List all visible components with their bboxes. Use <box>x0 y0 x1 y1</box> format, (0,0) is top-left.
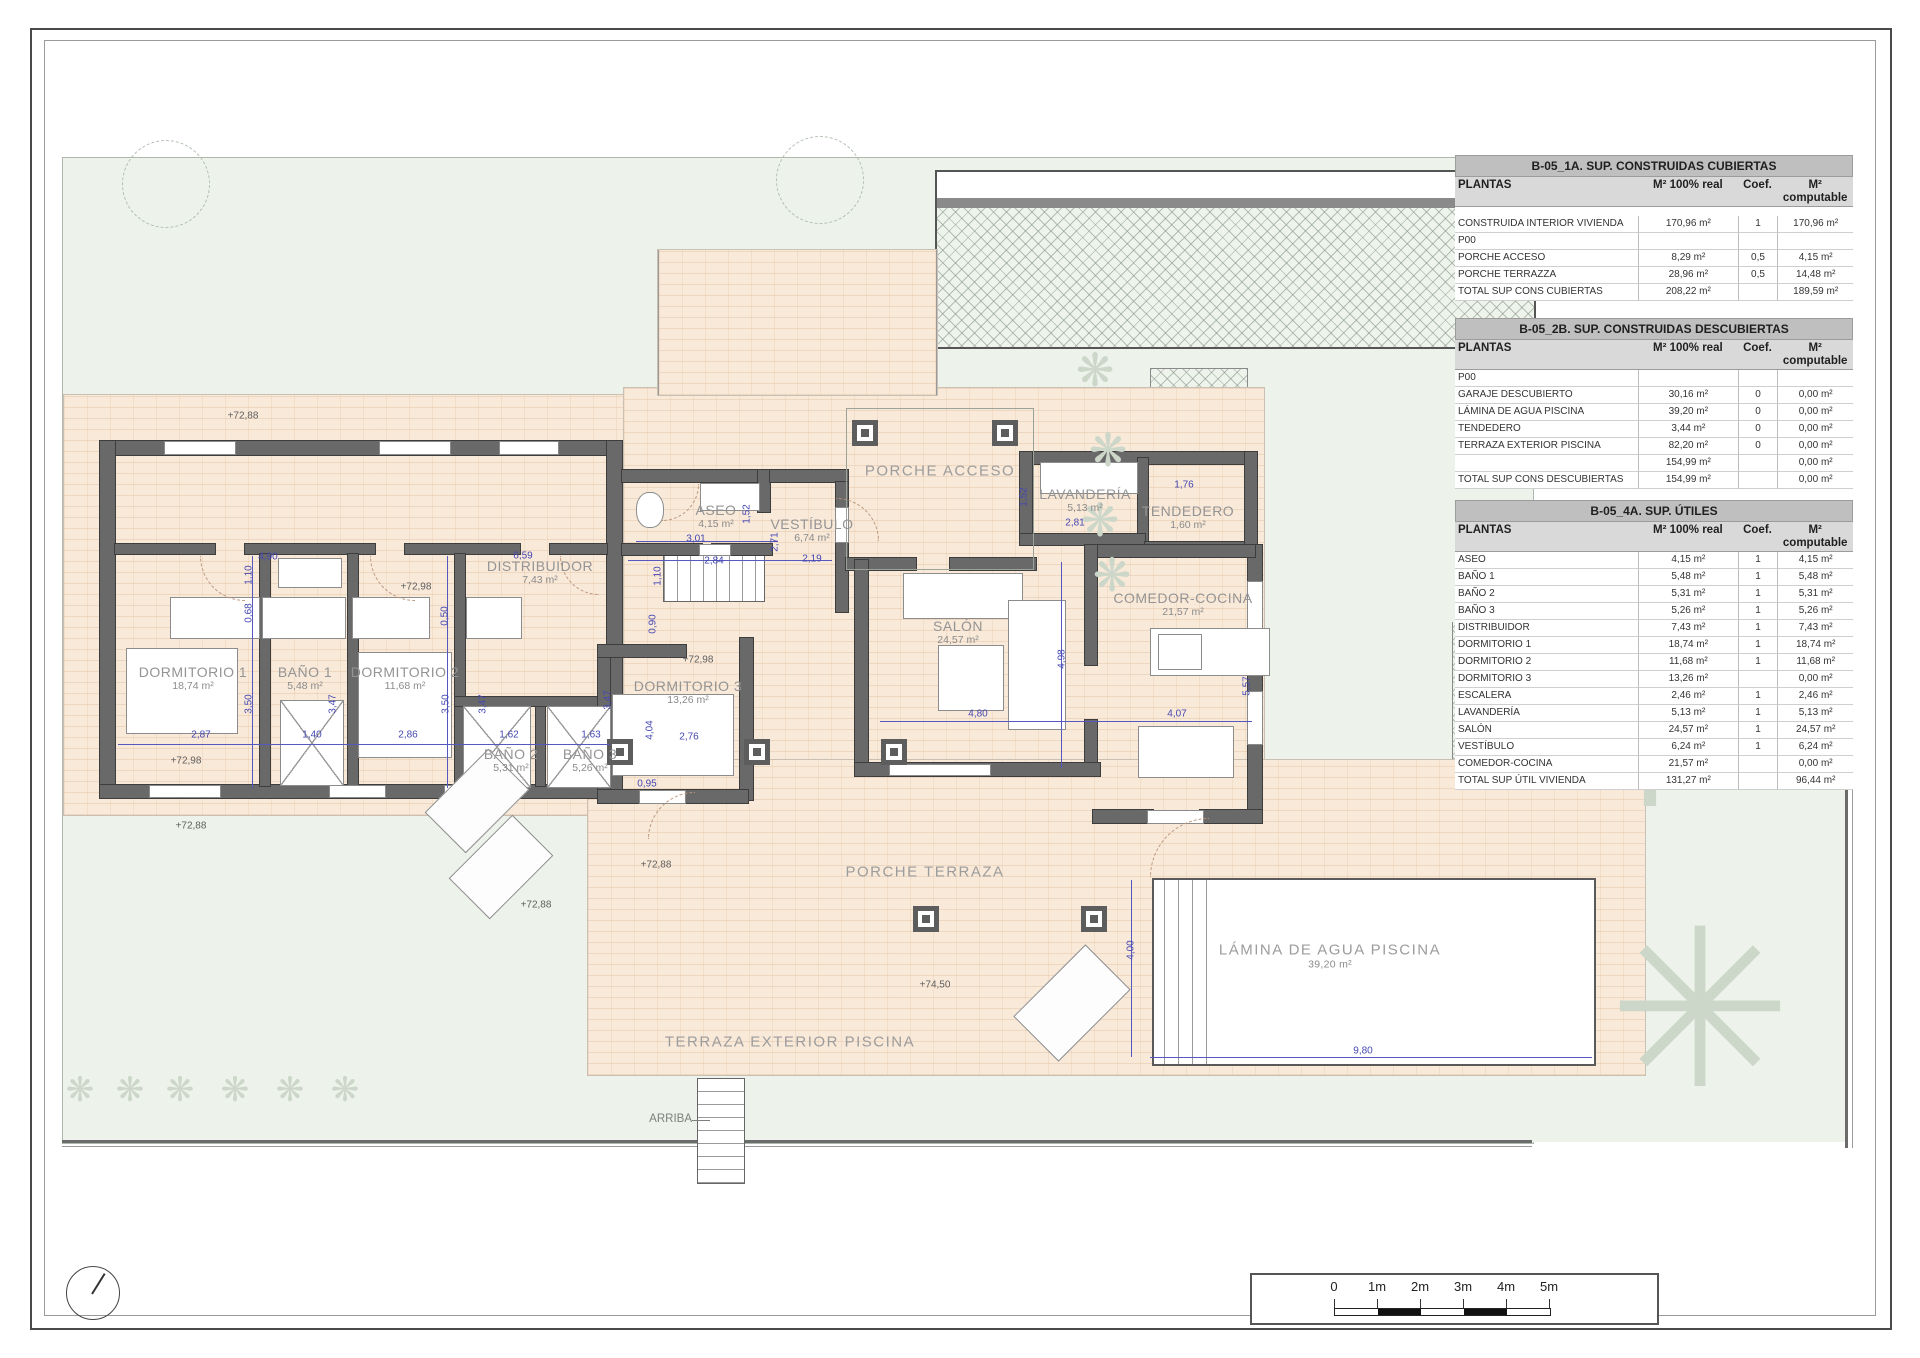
wall <box>622 470 772 482</box>
dimension-line <box>1131 880 1132 1057</box>
table-cell: DORMITORIO 2 <box>1455 654 1638 671</box>
dimension-text: 6,59 <box>513 551 532 562</box>
table-cell: PORCHE ACCESO <box>1455 250 1638 267</box>
scale-tick <box>1334 1299 1335 1308</box>
furniture <box>938 645 1004 711</box>
table-cell: 30,16 m² <box>1638 387 1738 404</box>
table-row: VESTÍBULO6,24 m²16,24 m² <box>1455 739 1853 756</box>
table-cell <box>1777 370 1853 387</box>
zone-label: LÁMINA DE AGUA PISCINA39,20 m² <box>1219 942 1441 971</box>
table-cell: 7,43 m² <box>1638 620 1738 637</box>
zone-area: 39,20 m² <box>1219 959 1441 971</box>
room-name: BAÑO 2 <box>484 746 538 762</box>
scale-segment <box>1378 1309 1421 1315</box>
furniture <box>903 573 1023 619</box>
table-body: P00GARAJE DESCUBIERTO30,16 m²00,00 m²LÁM… <box>1455 370 1853 489</box>
door-arc <box>370 556 415 601</box>
table-cell: 4,15 m² <box>1777 250 1853 267</box>
north-needle <box>91 1273 105 1294</box>
dimension-text: 1,62 <box>499 730 518 741</box>
table-header-cell: M² computable <box>1777 522 1853 551</box>
table-cell: 0,00 m² <box>1777 472 1853 489</box>
table-cell: 1 <box>1738 216 1778 233</box>
room-area: 11,68 m² <box>351 680 459 692</box>
table-title: B-05_2B. SUP. CONSTRUIDAS DESCUBIERTAS <box>1455 318 1853 340</box>
table-cell: 208,22 m² <box>1638 284 1738 301</box>
table-cell: TERRAZA EXTERIOR PISCINA <box>1455 438 1638 455</box>
garden-shrub: ❋ <box>66 1073 95 1107</box>
room-label: TENDEDERO1,60 m² <box>1142 503 1234 531</box>
table-cell: 1 <box>1738 739 1778 756</box>
dimension-line <box>636 541 778 542</box>
table-cell: 0,00 m² <box>1777 387 1853 404</box>
dimension-text: 4,98 <box>1057 649 1068 668</box>
table-cell: P00 <box>1455 233 1638 250</box>
zone-name: TERRAZA EXTERIOR PISCINA <box>665 1034 915 1051</box>
scale-segment <box>1421 1309 1464 1315</box>
tree-canopy-dashed <box>776 136 864 224</box>
level-marker: +72,88 <box>521 900 552 911</box>
dimension-text: 0,95 <box>637 779 656 790</box>
table-cell: 24,57 m² <box>1638 722 1738 739</box>
scale-tick <box>1463 1299 1464 1308</box>
room-label: DORMITORIO 313,26 m² <box>634 678 742 706</box>
table-cell: 154,99 m² <box>1638 455 1738 472</box>
table-cell: 1 <box>1738 705 1778 722</box>
table-cell: 11,68 m² <box>1638 654 1738 671</box>
garden-shrub: ❋ <box>331 1073 360 1107</box>
table-cell: 21,57 m² <box>1638 756 1738 773</box>
room-name: ASEO <box>696 502 737 518</box>
table-cell <box>1738 756 1778 773</box>
table-cell: 1 <box>1738 722 1778 739</box>
table-header-cell: Coef. <box>1738 522 1778 551</box>
window-gap <box>380 442 450 454</box>
table-cell: 0 <box>1738 404 1778 421</box>
room-label: BAÑO 25,31 m² <box>484 746 538 774</box>
table-cell: 189,59 m² <box>1777 284 1853 301</box>
table-cell: 3,44 m² <box>1638 421 1738 438</box>
table-cell <box>1738 671 1778 688</box>
zone-name: LÁMINA DE AGUA PISCINA <box>1219 942 1441 959</box>
table-cell: 0 <box>1738 438 1778 455</box>
table-cell: 1 <box>1738 569 1778 586</box>
scale-label: 3m <box>1454 1279 1472 1294</box>
table-cell: BAÑO 1 <box>1455 569 1638 586</box>
table-cell: 0,00 m² <box>1777 438 1853 455</box>
room-area: 13,26 m² <box>634 694 742 706</box>
porch-slab-edge <box>846 408 1034 570</box>
table-cell: 5,48 m² <box>1638 569 1738 586</box>
room-area: 1,60 m² <box>1142 519 1234 531</box>
table-cell: 2,46 m² <box>1638 688 1738 705</box>
furniture <box>466 597 522 639</box>
wall <box>622 544 702 555</box>
room-area: 24,57 m² <box>933 634 983 646</box>
dimension-text: 3,50 <box>441 694 452 713</box>
table-header-cell: M² computable <box>1777 340 1853 369</box>
table-cell: 4,15 m² <box>1777 552 1853 569</box>
table-cell <box>1738 455 1778 472</box>
room-name: TENDEDERO <box>1142 503 1234 519</box>
table-cell: 5,31 m² <box>1777 586 1853 603</box>
table-title: B-05_1A. SUP. CONSTRUIDAS CUBIERTAS <box>1455 155 1853 177</box>
table-header-row: PLANTASM² 100% realCoef.M² computable <box>1455 340 1853 370</box>
table-row: P00 <box>1455 233 1853 250</box>
furniture <box>352 597 430 639</box>
table-cell: LAVANDERÍA <box>1455 705 1638 722</box>
table-cell: 18,74 m² <box>1777 637 1853 654</box>
dimension-text: 4,00 <box>1126 940 1137 959</box>
dimension-line <box>252 556 253 788</box>
table-cell: ASEO <box>1455 552 1638 569</box>
table-header-cell: M² 100% real <box>1638 177 1738 206</box>
wall <box>405 544 520 554</box>
table-row: DORMITORIO 118,74 m²118,74 m² <box>1455 637 1853 654</box>
dimension-text: 0,50 <box>440 606 451 625</box>
table-cell: PORCHE TERRAZZA <box>1455 267 1638 284</box>
room-area: 18,74 m² <box>139 680 247 692</box>
scale-segment <box>1335 1309 1378 1315</box>
wall <box>100 441 115 798</box>
zone-label: TERRAZA EXTERIOR PISCINA <box>665 1034 915 1051</box>
pillar <box>1081 906 1107 932</box>
room-label: VESTÍBULO6,74 m² <box>770 516 853 544</box>
pillar <box>913 906 939 932</box>
zone-name: PORCHE TERRAZA <box>845 864 1004 881</box>
dimension-text: 3,47 <box>328 694 339 713</box>
table-cell: 28,96 m² <box>1638 267 1738 284</box>
room-area: 21,57 m² <box>1113 606 1252 618</box>
wall <box>1138 458 1148 544</box>
table-row: COMEDOR-COCINA21,57 m²0,00 m² <box>1455 756 1853 773</box>
table-cell: 1 <box>1738 688 1778 705</box>
scale-label: 2m <box>1411 1279 1429 1294</box>
table-cell: 0 <box>1738 421 1778 438</box>
table-row: LAVANDERÍA5,13 m²15,13 m² <box>1455 705 1853 722</box>
dimension-text: 5,57 <box>1242 676 1253 695</box>
table-cell: DISTRIBUIDOR <box>1455 620 1638 637</box>
room-area: 7,43 m² <box>487 574 593 586</box>
table-cell <box>1638 233 1738 250</box>
table-cell: GARAJE DESCUBIERTO <box>1455 387 1638 404</box>
table-cell: COMEDOR-COCINA <box>1455 756 1638 773</box>
scale-label: 0 <box>1330 1279 1337 1294</box>
dimension-text: 4,90 <box>258 552 277 563</box>
pillar <box>881 739 907 765</box>
table-cell: 82,20 m² <box>1638 438 1738 455</box>
table-cell: 5,31 m² <box>1638 586 1738 603</box>
dimension-text: 0,68 <box>244 603 255 622</box>
garden-shrub: ❋ <box>166 1073 195 1107</box>
dimension-text: 2,84 <box>704 556 723 567</box>
table-cell: 13,26 m² <box>1638 671 1738 688</box>
table-sup-construidas-cubiertas: B-05_1A. SUP. CONSTRUIDAS CUBIERTASPLANT… <box>1455 155 1853 301</box>
dimension-text: 3,01 <box>686 534 705 545</box>
table-cell: 5,26 m² <box>1638 603 1738 620</box>
room-name: DORMITORIO 3 <box>634 678 742 694</box>
table-cell: ESCALERA <box>1455 688 1638 705</box>
table-row: DISTRIBUIDOR7,43 m²17,43 m² <box>1455 620 1853 637</box>
table-body: CONSTRUIDA INTERIOR VIVIENDA170,96 m²117… <box>1455 207 1853 301</box>
table-cell: 6,24 m² <box>1638 739 1738 756</box>
table-title: B-05_4A. SUP. ÚTILES <box>1455 500 1853 522</box>
table-cell: 1 <box>1738 603 1778 620</box>
scale-label: 1m <box>1368 1279 1386 1294</box>
table-cell: DORMITORIO 3 <box>1455 671 1638 688</box>
table-cell <box>1738 773 1778 790</box>
scale-label: 4m <box>1497 1279 1515 1294</box>
table-cell <box>1638 370 1738 387</box>
room-name: SALÓN <box>933 618 983 634</box>
wall <box>115 544 215 554</box>
table-cell: TOTAL SUP ÚTIL VIVIENDA <box>1455 773 1638 790</box>
table-body: ASEO4,15 m²14,15 m²BAÑO 15,48 m²15,48 m²… <box>1455 552 1853 790</box>
table-cell: CONSTRUIDA INTERIOR VIVIENDA <box>1455 216 1638 233</box>
window-gap <box>890 765 990 775</box>
table-cell: TENDEDERO <box>1455 421 1638 438</box>
table-header-cell: Coef. <box>1738 177 1778 206</box>
room-name: VESTÍBULO <box>770 516 853 532</box>
window-gap <box>330 786 385 797</box>
dimension-text: 4,80 <box>968 709 987 720</box>
table-cell: 0,5 <box>1738 250 1778 267</box>
wall <box>550 544 607 554</box>
table-row: BAÑO 15,48 m²15,48 m² <box>1455 569 1853 586</box>
room-name: LAVANDERÍA <box>1039 486 1131 502</box>
table-cell: 0,00 m² <box>1777 671 1853 688</box>
table-cell: 2,46 m² <box>1777 688 1853 705</box>
room-area: 5,26 m² <box>563 762 617 774</box>
table-cell <box>1738 370 1778 387</box>
room-label: DORMITORIO 118,74 m² <box>139 664 247 692</box>
dimension-text: 1,40 <box>302 730 321 741</box>
garden-shrub: ❋ <box>116 1073 145 1107</box>
table-cell <box>1455 455 1638 472</box>
dimension-text: 1,10 <box>653 566 664 585</box>
table-header-cell: PLANTAS <box>1455 522 1638 551</box>
table-cell: TOTAL SUP CONS CUBIERTAS <box>1455 284 1638 301</box>
level-marker: +74,50 <box>920 980 951 991</box>
wall <box>260 554 270 786</box>
table-cell: 11,68 m² <box>1777 654 1853 671</box>
table-cell: 131,27 m² <box>1638 773 1738 790</box>
dimension-text: 3,50 <box>244 694 255 713</box>
dimension-text: 0,90 <box>648 614 659 633</box>
table-cell: 24,57 m² <box>1777 722 1853 739</box>
table-cell: 0,00 m² <box>1777 455 1853 472</box>
table-header-row: PLANTASM² 100% realCoef.M² computable <box>1455 522 1853 552</box>
garden-tree: ❋ <box>1076 347 1115 393</box>
table-cell: 0,00 m² <box>1777 756 1853 773</box>
window-gap <box>150 786 220 797</box>
room-name: DISTRIBUIDOR <box>487 558 593 574</box>
table-cell: TOTAL SUP CONS DESCUBIERTAS <box>1455 472 1638 489</box>
level-marker: +72,98 <box>683 655 714 666</box>
table-header-cell: M² 100% real <box>1638 340 1738 369</box>
furniture <box>1138 726 1234 778</box>
scale-tick <box>1549 1299 1550 1308</box>
room-label: DISTRIBUIDOR7,43 m² <box>487 558 593 586</box>
table-row: DORMITORIO 313,26 m²0,00 m² <box>1455 671 1853 688</box>
room-area: 5,31 m² <box>484 762 538 774</box>
table-row: LÁMINA DE AGUA PISCINA39,20 m²00,00 m² <box>1455 404 1853 421</box>
table-cell: 0,00 m² <box>1777 404 1853 421</box>
wall <box>855 560 868 776</box>
table-cell: SALÓN <box>1455 722 1638 739</box>
wall <box>1200 810 1262 823</box>
scale-bar: 01m2m3m4m5m <box>1250 1273 1659 1325</box>
zone-label: PORCHE ACCESO <box>865 463 1015 480</box>
dimension-text: 2,81 <box>1065 518 1084 529</box>
door-arc <box>662 484 699 521</box>
door-arc <box>1150 818 1209 877</box>
scale-segment <box>1507 1309 1550 1315</box>
table-row: ASEO4,15 m²14,15 m² <box>1455 552 1853 569</box>
table-cell <box>1738 233 1778 250</box>
pillar <box>744 739 770 765</box>
dimension-text: 3,47 <box>603 690 614 709</box>
room-label: LAVANDERÍA5,13 m² <box>1039 486 1131 514</box>
table-cell <box>1777 233 1853 250</box>
garden-shrub: ❋ <box>221 1073 250 1107</box>
kitchen-hob <box>1158 634 1202 670</box>
table-sup-utiles: B-05_4A. SUP. ÚTILESPLANTASM² 100% realC… <box>1455 500 1853 790</box>
table-cell: 5,26 m² <box>1777 603 1853 620</box>
table-cell: 7,43 m² <box>1777 620 1853 637</box>
wall <box>1093 810 1153 823</box>
table-cell: 14,48 m² <box>1777 267 1853 284</box>
scale-tick <box>1420 1299 1421 1308</box>
wall <box>598 645 686 657</box>
room-label: BAÑO 15,48 m² <box>278 664 332 692</box>
tree-canopy-dashed <box>122 140 210 228</box>
dimension-text: 1,52 <box>1019 487 1030 506</box>
room-name: BAÑO 3 <box>563 746 617 762</box>
level-marker: +72,88 <box>641 860 672 871</box>
room-area: 6,74 m² <box>770 532 853 544</box>
room-label: DORMITORIO 211,68 m² <box>351 664 459 692</box>
table-cell: 170,96 m² <box>1638 216 1738 233</box>
table-cell: LÁMINA DE AGUA PISCINA <box>1455 404 1638 421</box>
wall <box>740 638 753 800</box>
table-row: PORCHE TERRAZZA28,96 m²0,514,48 m² <box>1455 267 1853 284</box>
table-cell: 18,74 m² <box>1638 637 1738 654</box>
dimension-text: 3,47 <box>478 694 489 713</box>
table-sup-construidas-descubiertas: B-05_2B. SUP. CONSTRUIDAS DESCUBIERTASPL… <box>1455 318 1853 489</box>
table-cell <box>1738 284 1778 301</box>
table-cell: 1 <box>1738 620 1778 637</box>
room-label: SALÓN24,57 m² <box>933 618 983 646</box>
table-cell: P00 <box>1455 370 1638 387</box>
dimension-text: 1,76 <box>1174 480 1193 491</box>
dimension-line <box>118 744 610 745</box>
dimension-text: 1,10 <box>244 565 255 584</box>
floor-plan-sheet: ARRIBA ✳✳❋❋❋❋❋❋❋❋❋❋DORMITORIO 118,74 m²B… <box>0 0 1920 1358</box>
table-cell: 5,13 m² <box>1638 705 1738 722</box>
table-row: CONSTRUIDA INTERIOR VIVIENDA170,96 m²117… <box>1455 216 1853 233</box>
room-name: COMEDOR-COCINA <box>1113 590 1252 606</box>
table-row: P00 <box>1455 370 1853 387</box>
table-cell: 0,00 m² <box>1777 421 1853 438</box>
table-cell: 8,29 m² <box>1638 250 1738 267</box>
table-cell: 39,20 m² <box>1638 404 1738 421</box>
table-row: SALÓN24,57 m²124,57 m² <box>1455 722 1853 739</box>
table-cell <box>1738 472 1778 489</box>
table-header-cell: M² 100% real <box>1638 522 1738 551</box>
room-area: 5,13 m² <box>1039 502 1131 514</box>
scale-segment <box>1464 1309 1507 1315</box>
garden-shrub: ❋ <box>276 1073 305 1107</box>
zone-label: PORCHE TERRAZA <box>845 864 1004 881</box>
furniture <box>262 597 346 639</box>
table-cell: 1 <box>1738 637 1778 654</box>
table-cell: 0,5 <box>1738 267 1778 284</box>
table-row: TOTAL SUP ÚTIL VIVIENDA131,27 m²96,44 m² <box>1455 773 1853 790</box>
table-row: TOTAL SUP CONS DESCUBIERTAS154,99 m²0,00… <box>1455 472 1853 489</box>
table-row: DORMITORIO 211,68 m²111,68 m² <box>1455 654 1853 671</box>
dimension-text: 2,76 <box>679 732 698 743</box>
room-label: BAÑO 35,26 m² <box>563 746 617 774</box>
room-area: 4,15 m² <box>696 518 737 530</box>
scale-label: 5m <box>1540 1279 1558 1294</box>
scale-tick <box>1506 1299 1507 1308</box>
window-gap <box>1248 692 1262 744</box>
table-cell: 6,24 m² <box>1777 739 1853 756</box>
table-cell: 5,48 m² <box>1777 569 1853 586</box>
table-row: PORCHE ACCESO8,29 m²0,54,15 m² <box>1455 250 1853 267</box>
table-cell: BAÑO 2 <box>1455 586 1638 603</box>
dimension-text: 4,04 <box>645 720 656 739</box>
table-cell: 1 <box>1738 586 1778 603</box>
zone-name: PORCHE ACCESO <box>865 463 1015 480</box>
table-row: BAÑO 25,31 m²15,31 m² <box>1455 586 1853 603</box>
room-name: BAÑO 1 <box>278 664 332 680</box>
table-cell: BAÑO 3 <box>1455 603 1638 620</box>
window-gap <box>165 442 235 454</box>
garden-tree: ❋ <box>1089 427 1128 473</box>
scale-bar-segments <box>1334 1308 1551 1316</box>
table-row: TOTAL SUP CONS CUBIERTAS208,22 m²189,59 … <box>1455 284 1853 301</box>
window-gap <box>500 442 558 454</box>
level-marker: +72,88 <box>176 821 207 832</box>
palm-tree: ✳ <box>1608 900 1792 1120</box>
table-header-cell: M² computable <box>1777 177 1853 206</box>
table-cell: 170,96 m² <box>1777 216 1853 233</box>
table-header-cell: PLANTAS <box>1455 340 1638 369</box>
dimension-text: 2,87 <box>191 730 210 741</box>
table-cell: 1 <box>1738 552 1778 569</box>
door-arc <box>200 556 245 601</box>
room-label: ASEO4,15 m² <box>696 502 737 530</box>
table-header-cell: PLANTAS <box>1455 177 1638 206</box>
level-marker: +72,88 <box>228 411 259 422</box>
dimension-line <box>1150 1057 1592 1058</box>
table-cell: 5,13 m² <box>1777 705 1853 722</box>
table-row: 154,99 m²0,00 m² <box>1455 455 1853 472</box>
wall <box>1245 452 1257 553</box>
dimension-text: 2,86 <box>398 730 417 741</box>
sun-lounger <box>1013 944 1130 1061</box>
dimension-text: 4,07 <box>1167 709 1186 720</box>
table-cell: 0 <box>1738 387 1778 404</box>
room-name: DORMITORIO 1 <box>139 664 247 680</box>
window-gap <box>700 545 730 555</box>
dimension-text: 1,63 <box>581 730 600 741</box>
north-symbol <box>66 1266 120 1320</box>
level-marker: +72,98 <box>171 756 202 767</box>
room-name: DORMITORIO 2 <box>351 664 459 680</box>
